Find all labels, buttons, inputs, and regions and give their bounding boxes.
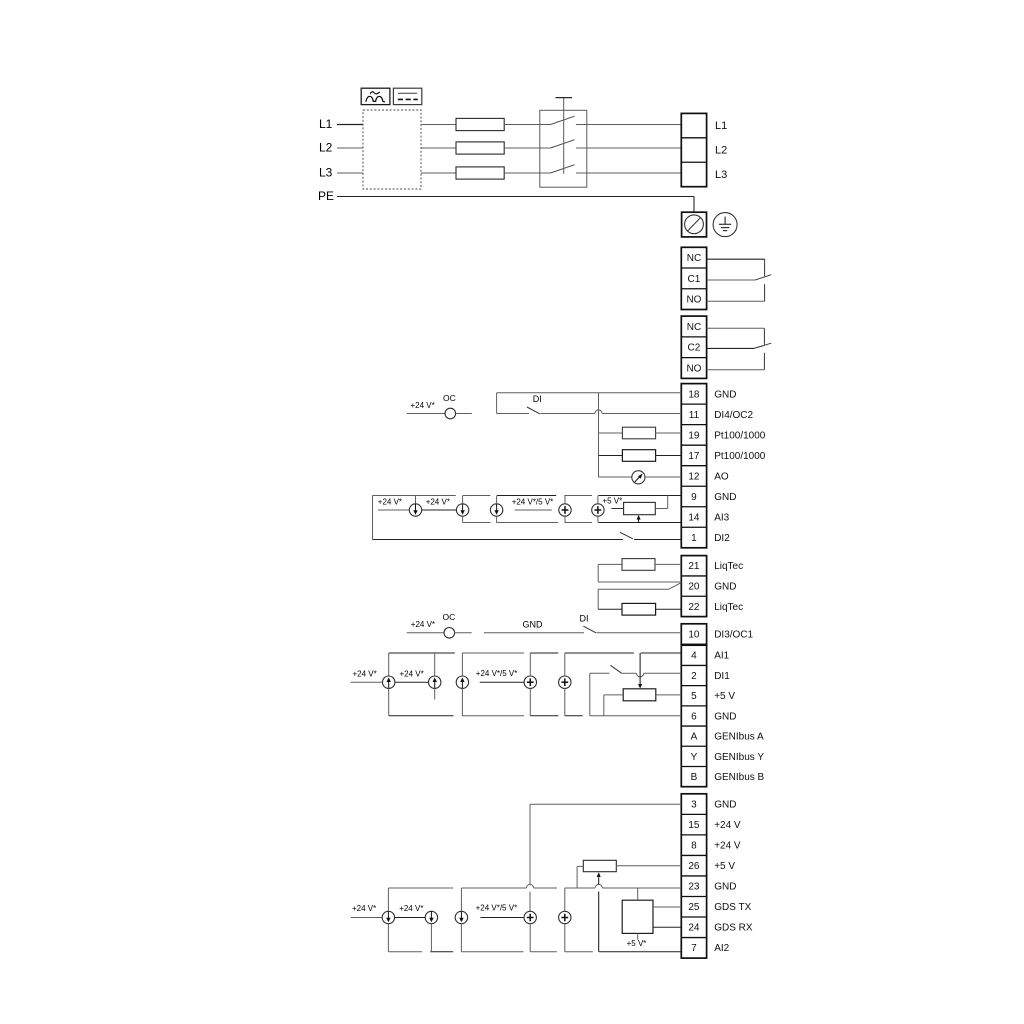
svg-text:GND: GND [714, 882, 736, 893]
svg-text:12: 12 [688, 471, 700, 482]
svg-text:DI3/OC1: DI3/OC1 [714, 630, 753, 641]
svg-text:C1: C1 [688, 274, 701, 285]
svg-text:GDS RX: GDS RX [714, 923, 753, 934]
svg-text:AI2: AI2 [714, 943, 729, 954]
svg-text:GND: GND [714, 711, 736, 722]
svg-text:14: 14 [688, 512, 700, 523]
svg-text:LiqTec: LiqTec [714, 602, 743, 613]
svg-text:AO: AO [714, 471, 729, 482]
svg-text:5: 5 [691, 691, 697, 702]
svg-text:LiqTec: LiqTec [714, 561, 743, 572]
svg-text:21: 21 [688, 561, 700, 572]
svg-text:DI1: DI1 [714, 671, 730, 682]
svg-text:+5 V*: +5 V* [627, 939, 647, 948]
svg-text:22: 22 [688, 602, 700, 613]
svg-text:10: 10 [688, 630, 700, 641]
svg-text:+24 V*: +24 V* [411, 620, 435, 629]
svg-text:Y: Y [691, 752, 698, 763]
svg-text:+24 V: +24 V [714, 820, 741, 831]
svg-text:L2: L2 [319, 141, 333, 155]
svg-text:GENIbus Y: GENIbus Y [714, 752, 764, 763]
svg-text:DI2: DI2 [714, 533, 730, 544]
svg-text:A: A [691, 732, 698, 743]
svg-text:AI3: AI3 [714, 512, 729, 523]
svg-text:GDS TX: GDS TX [714, 902, 751, 913]
svg-text:25: 25 [688, 902, 700, 913]
svg-text:+24 V*/5 V*: +24 V*/5 V* [476, 903, 518, 912]
svg-text:L3: L3 [715, 169, 727, 181]
svg-text:17: 17 [688, 451, 700, 462]
svg-text:24: 24 [688, 923, 700, 934]
svg-text:GND: GND [714, 799, 736, 810]
svg-text:+24 V*: +24 V* [426, 497, 450, 506]
svg-text:4: 4 [691, 651, 697, 662]
svg-text:+24 V*: +24 V* [353, 669, 377, 678]
svg-text:+24 V*: +24 V* [352, 904, 376, 913]
svg-text:OC: OC [443, 393, 456, 403]
svg-text:3: 3 [691, 799, 697, 810]
svg-text:GND: GND [714, 492, 736, 503]
svg-text:GENIbus A: GENIbus A [714, 732, 764, 743]
svg-text:+24 V*: +24 V* [378, 497, 402, 506]
svg-text:19: 19 [688, 430, 700, 441]
svg-text:GND: GND [523, 619, 544, 629]
svg-text:1: 1 [691, 533, 697, 544]
svg-text:L3: L3 [319, 166, 333, 180]
svg-text:B: B [691, 772, 698, 783]
svg-text:+5 V: +5 V [714, 861, 735, 872]
svg-text:NO: NO [686, 363, 701, 374]
svg-text:DI: DI [580, 613, 589, 623]
svg-text:9: 9 [691, 492, 697, 503]
svg-text:NC: NC [687, 322, 701, 333]
svg-text:+24 V*/5 V*: +24 V*/5 V* [512, 497, 554, 506]
svg-text:+24 V*: +24 V* [411, 401, 435, 410]
svg-text:11: 11 [689, 410, 700, 421]
svg-text:+24 V: +24 V [714, 841, 741, 852]
svg-text:NO: NO [686, 295, 701, 306]
svg-text:8: 8 [691, 841, 697, 852]
svg-text:2: 2 [691, 671, 697, 682]
svg-text:15: 15 [688, 820, 700, 831]
svg-text:NC: NC [687, 253, 701, 264]
svg-text:+5 V*: +5 V* [602, 496, 622, 505]
svg-text:GND: GND [714, 582, 736, 593]
svg-text:+24 V*: +24 V* [400, 669, 424, 678]
svg-text:L2: L2 [715, 144, 727, 156]
svg-text:C2: C2 [688, 343, 701, 354]
svg-text:18: 18 [688, 389, 700, 400]
svg-text:+24 V*: +24 V* [399, 904, 423, 913]
svg-text:L1: L1 [319, 117, 333, 131]
svg-text:Pt100/1000: Pt100/1000 [714, 451, 766, 462]
svg-text:DI4/OC2: DI4/OC2 [714, 410, 753, 421]
svg-text:+5 V: +5 V [714, 691, 735, 702]
svg-text:Pt100/1000: Pt100/1000 [714, 430, 766, 441]
svg-text:AI1: AI1 [714, 651, 729, 662]
svg-text:26: 26 [688, 861, 700, 872]
svg-text:DI: DI [533, 394, 542, 404]
svg-text:+24 V*/5 V*: +24 V*/5 V* [476, 669, 518, 678]
svg-text:GENIbus B: GENIbus B [714, 772, 764, 783]
svg-text:OC: OC [443, 612, 456, 622]
svg-text:23: 23 [688, 882, 700, 893]
svg-text:20: 20 [688, 582, 700, 593]
svg-text:GND: GND [714, 389, 736, 400]
svg-text:7: 7 [691, 943, 697, 954]
svg-text:PE: PE [318, 189, 334, 203]
svg-text:6: 6 [691, 711, 697, 722]
svg-text:L1: L1 [715, 120, 727, 132]
